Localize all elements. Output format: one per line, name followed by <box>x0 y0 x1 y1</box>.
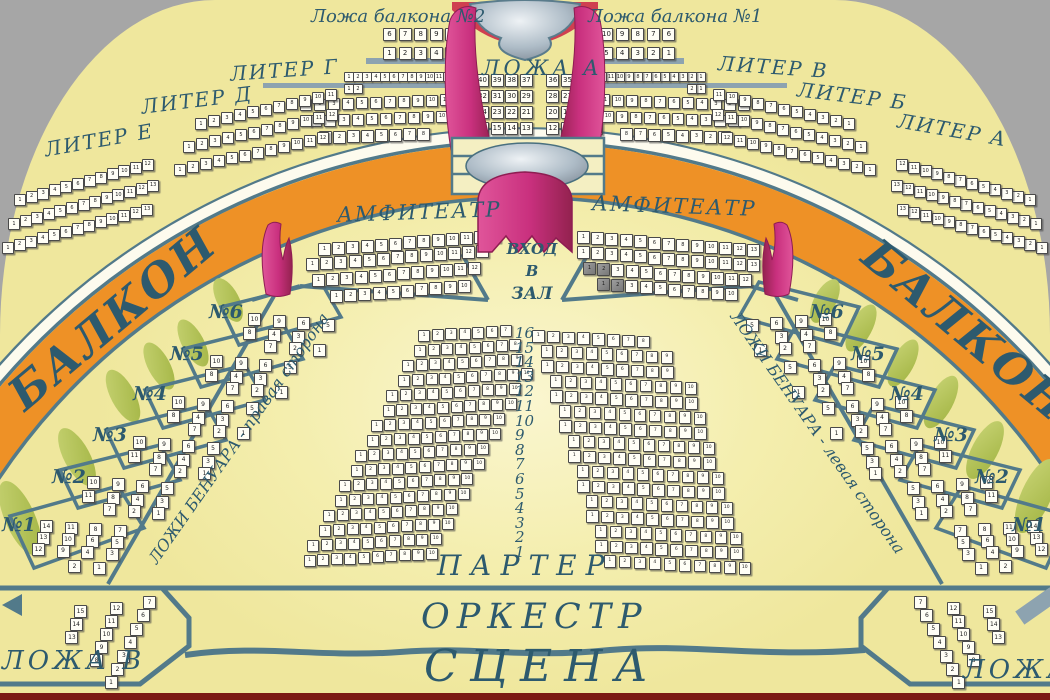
seat[interactable]: 3 <box>589 407 602 420</box>
seat[interactable]: 10 <box>430 533 442 545</box>
seat[interactable]: 3 <box>631 47 644 60</box>
seat[interactable]: 8 <box>696 286 709 299</box>
seat[interactable]: 9 <box>697 486 710 499</box>
seat[interactable]: 6 <box>372 551 384 563</box>
seat[interactable]: 8 <box>482 384 494 396</box>
seat[interactable]: 1 <box>590 138 603 151</box>
seat[interactable]: 5 <box>363 254 376 267</box>
seat[interactable]: 3 <box>346 241 359 254</box>
seat[interactable]: 8 <box>637 336 650 349</box>
seat[interactable]: 3 <box>1001 188 1013 200</box>
seat[interactable]: 7 <box>654 96 666 108</box>
seat[interactable]: 4 <box>622 467 635 480</box>
seat[interactable]: 2 <box>583 451 596 464</box>
seat[interactable]: 6 <box>643 439 656 452</box>
seat[interactable]: 1 <box>371 420 383 432</box>
seat[interactable]: 5 <box>130 623 143 636</box>
seat[interactable]: 1 <box>306 258 319 271</box>
seat[interactable]: 7 <box>622 335 635 348</box>
seat[interactable]: 2 <box>320 257 333 270</box>
seat[interactable]: 4 <box>546 138 559 151</box>
seat[interactable]: 6 <box>972 202 984 214</box>
seat[interactable]: 5 <box>409 447 421 459</box>
seat[interactable]: 10 <box>932 213 944 225</box>
seat[interactable]: 9 <box>428 519 440 531</box>
seat[interactable]: 7 <box>78 199 90 211</box>
seat[interactable]: 10 <box>118 165 130 177</box>
seat[interactable]: 2 <box>591 232 604 245</box>
seat[interactable]: 3 <box>445 328 457 340</box>
seat[interactable]: 4 <box>222 132 234 144</box>
seat[interactable]: 7 <box>389 535 401 547</box>
seat[interactable]: 9 <box>95 216 107 228</box>
seat[interactable]: 11 <box>725 273 738 286</box>
seat[interactable]: 3 <box>571 362 584 375</box>
seat[interactable]: 7 <box>399 28 412 41</box>
seat[interactable]: 6 <box>419 461 431 473</box>
seat[interactable]: 8 <box>417 235 430 248</box>
seat[interactable]: 6 <box>625 394 638 407</box>
seat[interactable]: 10 <box>210 355 223 368</box>
seat[interactable]: 3 <box>37 188 49 200</box>
seat[interactable]: 2 <box>597 263 610 276</box>
seat[interactable]: 11 <box>719 257 732 270</box>
seat[interactable]: 2 <box>333 131 346 144</box>
seat[interactable]: 2 <box>349 494 361 506</box>
seat[interactable]: 6 <box>505 138 518 151</box>
seat[interactable]: 7 <box>668 269 681 282</box>
seat[interactable]: 4 <box>604 407 617 420</box>
seat[interactable]: 2 <box>333 524 345 536</box>
seat[interactable]: 10 <box>711 272 724 285</box>
seat[interactable]: 10 <box>312 92 324 104</box>
seat[interactable]: 8 <box>640 96 652 108</box>
seat[interactable]: 7 <box>468 385 480 397</box>
seat[interactable]: 2 <box>1018 215 1030 227</box>
seat[interactable]: 7 <box>676 500 689 513</box>
seat[interactable]: 5 <box>619 408 632 421</box>
seat[interactable]: 2 <box>574 421 587 434</box>
seat[interactable]: 8 <box>773 144 785 156</box>
seat[interactable]: 6 <box>778 104 790 116</box>
seat[interactable]: 3 <box>338 114 350 126</box>
seat[interactable]: 6 <box>808 359 821 372</box>
seat[interactable]: 12 <box>462 246 475 259</box>
seat[interactable]: 1 <box>541 345 554 358</box>
seat[interactable]: 1 <box>398 375 410 387</box>
seat[interactable]: 11 <box>454 263 467 276</box>
seat[interactable]: 8 <box>274 121 286 133</box>
seat[interactable]: 12 <box>474 231 487 244</box>
seat[interactable]: 6 <box>482 341 494 353</box>
seat[interactable]: 2 <box>337 509 349 521</box>
seat[interactable]: 3 <box>394 433 406 445</box>
seat[interactable]: 5 <box>619 423 632 436</box>
seat[interactable]: 4 <box>352 114 364 126</box>
seat[interactable]: 1 <box>152 507 165 520</box>
seat[interactable]: 3 <box>625 527 638 540</box>
seat[interactable]: 1 <box>915 507 928 520</box>
seat[interactable]: 10 <box>730 547 743 560</box>
seat[interactable]: 7 <box>634 128 647 141</box>
seat[interactable]: 10 <box>489 428 501 440</box>
seat[interactable]: 5 <box>369 270 382 283</box>
seat[interactable]: 4 <box>411 418 423 430</box>
seat[interactable]: 8 <box>411 266 424 279</box>
seat[interactable]: 12 <box>32 543 45 556</box>
seat[interactable]: 9 <box>464 444 476 456</box>
seat[interactable]: 7 <box>786 147 798 159</box>
seat[interactable]: 3 <box>358 288 371 301</box>
seat[interactable]: 3 <box>398 418 410 430</box>
seat[interactable]: 1 <box>583 262 596 275</box>
seat[interactable]: 1 <box>1030 218 1042 230</box>
seat[interactable]: 8 <box>466 414 478 426</box>
seat[interactable]: 3 <box>429 358 441 370</box>
seat[interactable]: 6 <box>652 484 665 497</box>
seat[interactable]: 5 <box>592 333 605 346</box>
seat[interactable]: 9 <box>448 474 460 486</box>
seat[interactable]: 5 <box>861 442 874 455</box>
seat[interactable]: 3 <box>340 272 353 285</box>
seat[interactable]: 3 <box>334 256 347 269</box>
seat[interactable]: 8 <box>631 28 644 41</box>
seat[interactable]: 9 <box>432 504 444 516</box>
seat[interactable]: 9 <box>956 478 969 491</box>
seat[interactable]: 8 <box>405 250 418 263</box>
seat[interactable]: 4 <box>626 265 639 278</box>
seat[interactable]: 10 <box>436 111 448 123</box>
seat[interactable]: 7 <box>391 251 404 264</box>
seat[interactable]: 4 <box>933 636 946 649</box>
seat[interactable]: 23 <box>491 106 504 119</box>
seat[interactable]: 5 <box>226 152 238 164</box>
seat[interactable]: 12 <box>136 183 148 195</box>
seat[interactable]: 2 <box>174 465 187 478</box>
seat[interactable]: 2 <box>574 406 587 419</box>
seat[interactable]: 10 <box>612 95 624 107</box>
seat[interactable]: 10 <box>446 233 459 246</box>
seat[interactable]: 6 <box>670 529 683 542</box>
seat[interactable]: 2 <box>416 359 428 371</box>
seat[interactable]: 7 <box>631 350 644 363</box>
seat[interactable]: 4 <box>995 208 1007 220</box>
seat[interactable]: 10 <box>461 473 473 485</box>
seat[interactable]: 11 <box>598 94 610 106</box>
seat[interactable]: 8 <box>655 396 668 409</box>
seat[interactable]: 3 <box>607 467 620 480</box>
seat[interactable]: 5 <box>654 282 667 295</box>
seat[interactable]: 6 <box>616 349 629 362</box>
seat[interactable]: 8 <box>286 98 298 110</box>
seat[interactable]: 7 <box>415 283 428 296</box>
seat[interactable]: 4 <box>586 347 599 360</box>
seat[interactable]: 6 <box>668 97 680 109</box>
seat[interactable]: 2 <box>384 419 396 431</box>
seat[interactable]: 10 <box>106 213 118 225</box>
seat[interactable]: 11 <box>124 186 136 198</box>
seat[interactable]: 7 <box>385 550 397 562</box>
seat[interactable]: 4 <box>1001 232 1013 244</box>
seat[interactable]: 6 <box>670 544 683 557</box>
seat[interactable]: 1 <box>339 480 351 492</box>
seat[interactable]: 19 <box>561 106 574 119</box>
seat[interactable]: 5 <box>646 513 659 526</box>
seat[interactable]: 6 <box>380 113 392 125</box>
seat[interactable]: 9 <box>670 381 683 394</box>
seat[interactable]: 26 <box>576 90 589 103</box>
seat[interactable]: 11 <box>920 210 932 222</box>
seat[interactable]: 3 <box>838 158 850 170</box>
seat[interactable]: 2 <box>26 191 38 203</box>
seat[interactable]: 3 <box>616 512 629 525</box>
seat[interactable]: 6 <box>885 440 898 453</box>
seat[interactable]: 2 <box>610 526 623 539</box>
seat[interactable]: 16 <box>476 122 489 135</box>
seat[interactable]: 10 <box>248 313 261 326</box>
seat[interactable]: 4 <box>376 493 388 505</box>
seat[interactable]: 7 <box>879 423 892 436</box>
seat[interactable]: 7 <box>436 445 448 457</box>
seat[interactable]: 11 <box>939 450 952 463</box>
seat[interactable]: 4 <box>586 362 599 375</box>
seat[interactable]: 6 <box>389 238 402 251</box>
seat[interactable]: 6 <box>658 113 670 125</box>
seat[interactable]: 10 <box>445 28 458 41</box>
seat[interactable]: 1 <box>355 450 367 462</box>
seat[interactable]: 8 <box>418 504 430 516</box>
seat[interactable]: 7 <box>685 545 698 558</box>
seat[interactable]: 9 <box>197 398 210 411</box>
seat[interactable]: 8 <box>655 381 668 394</box>
seat[interactable]: 12 <box>468 262 481 275</box>
seat[interactable]: 3 <box>378 463 390 475</box>
seat[interactable]: 9 <box>491 399 503 411</box>
seat[interactable]: 10 <box>100 628 113 641</box>
seat[interactable]: 1 <box>174 164 186 176</box>
seat[interactable]: 3 <box>700 114 712 126</box>
seat[interactable]: 9 <box>495 384 507 396</box>
seat[interactable]: 6 <box>370 97 382 109</box>
seat[interactable]: 3 <box>347 523 359 535</box>
seat[interactable]: 6 <box>72 178 84 190</box>
seat[interactable]: 6 <box>770 317 783 330</box>
seat[interactable]: 9 <box>273 315 286 328</box>
seat[interactable]: 1 <box>307 540 319 552</box>
seat[interactable]: 8 <box>955 220 967 232</box>
seat[interactable]: 5 <box>390 492 402 504</box>
seat[interactable]: 12 <box>733 258 746 271</box>
seat[interactable]: 12 <box>733 243 746 256</box>
seat[interactable]: 2 <box>187 161 199 173</box>
seat[interactable]: 11 <box>128 450 141 463</box>
seat[interactable]: 8 <box>434 474 446 486</box>
seat[interactable]: 2 <box>128 505 141 518</box>
seat[interactable]: 10 <box>300 115 312 127</box>
seat[interactable]: 9 <box>287 118 299 130</box>
seat[interactable]: 8 <box>478 399 490 411</box>
seat[interactable]: 9 <box>412 95 424 107</box>
seat[interactable]: 3 <box>410 403 422 415</box>
seat[interactable]: 4 <box>604 422 617 435</box>
seat[interactable]: 8 <box>949 196 961 208</box>
seat[interactable]: 10 <box>703 457 716 470</box>
seat[interactable]: 5 <box>405 462 417 474</box>
seat[interactable]: 14 <box>70 618 83 631</box>
seat[interactable]: 9 <box>795 315 808 328</box>
seat[interactable]: 8 <box>403 534 415 546</box>
seat[interactable]: 9 <box>739 95 751 107</box>
seat[interactable]: 1 <box>383 405 395 417</box>
seat[interactable]: 3 <box>616 497 629 510</box>
seat[interactable]: 10 <box>576 122 589 135</box>
seat[interactable]: 10 <box>493 413 505 425</box>
seat[interactable]: 8 <box>943 172 955 184</box>
seat[interactable]: 4 <box>344 553 356 565</box>
seat[interactable]: 12 <box>110 602 123 615</box>
seat[interactable]: 13 <box>992 631 1005 644</box>
seat[interactable]: 8 <box>430 489 442 501</box>
seat[interactable]: 5 <box>610 393 623 406</box>
seat[interactable]: 8 <box>243 327 256 340</box>
seat[interactable]: 3 <box>678 72 688 82</box>
seat[interactable]: 8 <box>83 220 95 232</box>
seat[interactable]: 29 <box>520 90 533 103</box>
seat[interactable]: 8 <box>417 128 430 141</box>
seat[interactable]: 5 <box>161 482 174 495</box>
seat[interactable]: 12 <box>739 274 752 287</box>
seat[interactable]: 2 <box>344 289 357 302</box>
seat[interactable]: 7 <box>500 325 512 337</box>
seat[interactable]: 10 <box>458 280 471 293</box>
seat[interactable]: 4 <box>622 482 635 495</box>
seat[interactable]: 9 <box>661 366 674 379</box>
seat[interactable]: 6 <box>470 356 482 368</box>
seat[interactable]: 8 <box>398 96 410 108</box>
seat[interactable]: 7 <box>452 415 464 427</box>
seat[interactable]: 11 <box>606 72 616 82</box>
seat[interactable]: 5 <box>378 507 390 519</box>
seat[interactable]: 6 <box>466 371 478 383</box>
seat[interactable]: 1 <box>597 278 610 291</box>
seat[interactable]: 7 <box>841 382 854 395</box>
seat[interactable]: 3 <box>347 130 360 143</box>
seat[interactable]: 4 <box>989 184 1001 196</box>
seat[interactable]: 10 <box>726 92 738 104</box>
seat[interactable]: 4 <box>349 255 362 268</box>
seat[interactable]: 4 <box>234 109 246 121</box>
seat[interactable]: 3 <box>817 112 829 124</box>
seat[interactable]: 4 <box>423 403 435 415</box>
seat[interactable]: 5 <box>637 468 650 481</box>
seat[interactable]: 4 <box>640 527 653 540</box>
seat[interactable]: 2 <box>196 138 208 150</box>
seat[interactable]: 10 <box>477 443 489 455</box>
seat[interactable]: 4 <box>49 184 61 196</box>
seat[interactable]: 4 <box>459 328 471 340</box>
seat[interactable]: 11 <box>448 247 461 260</box>
seat[interactable]: 4 <box>37 232 49 244</box>
seat[interactable]: 8 <box>682 471 695 484</box>
seat[interactable]: 7 <box>84 175 96 187</box>
seat[interactable]: 4 <box>213 155 225 167</box>
seat[interactable]: 7 <box>631 365 644 378</box>
seat[interactable]: 6 <box>846 400 859 413</box>
seat[interactable]: 6 <box>966 178 978 190</box>
seat[interactable]: 9 <box>724 561 737 574</box>
seat[interactable]: 6 <box>259 359 272 372</box>
seat[interactable]: 8 <box>205 369 218 382</box>
seat[interactable]: 9 <box>107 168 119 180</box>
seat[interactable]: 8 <box>824 327 837 340</box>
seat[interactable]: 6 <box>66 202 78 214</box>
seat[interactable]: 1 <box>1036 242 1048 254</box>
seat[interactable]: 9 <box>760 141 772 153</box>
seat[interactable]: 6 <box>607 334 620 347</box>
seat[interactable]: 13 <box>476 245 489 258</box>
seat[interactable]: 9 <box>962 641 975 654</box>
seat[interactable]: 2 <box>326 273 339 286</box>
seat[interactable]: 5 <box>387 286 400 299</box>
seat[interactable]: 2 <box>428 344 440 356</box>
seat[interactable]: 3 <box>829 135 841 147</box>
seat[interactable]: 8 <box>676 254 689 267</box>
seat[interactable]: 2 <box>547 331 560 344</box>
seat[interactable]: 13 <box>747 259 760 272</box>
seat[interactable]: 3 <box>331 553 343 565</box>
seat[interactable]: 4 <box>361 130 374 143</box>
seat[interactable]: 7 <box>417 490 429 502</box>
seat[interactable]: 1 <box>577 465 590 478</box>
seat[interactable]: 3 <box>25 236 37 248</box>
seat[interactable]: 6 <box>654 268 667 281</box>
seat[interactable]: 5 <box>822 402 835 415</box>
seat[interactable]: 7 <box>403 236 416 249</box>
seat[interactable]: 7 <box>273 101 285 113</box>
seat[interactable]: 5 <box>628 438 641 451</box>
seat[interactable]: 6 <box>486 326 498 338</box>
seat[interactable]: 8 <box>700 531 713 544</box>
seat[interactable]: 11 <box>440 94 452 106</box>
seat[interactable]: 5 <box>646 498 659 511</box>
seat[interactable]: 9 <box>444 281 457 294</box>
seat[interactable]: 7 <box>448 430 460 442</box>
seat[interactable]: 6 <box>634 424 647 437</box>
seat[interactable]: 4 <box>613 452 626 465</box>
seat[interactable]: 10 <box>440 264 453 277</box>
seat[interactable]: 3 <box>414 47 427 60</box>
seat[interactable]: 2 <box>619 556 632 569</box>
seat[interactable]: 8 <box>476 138 489 151</box>
seat[interactable]: 6 <box>387 521 399 533</box>
seat[interactable]: 1 <box>195 118 207 130</box>
seat[interactable]: 1 <box>2 242 14 254</box>
seat[interactable]: 2 <box>20 215 32 227</box>
seat[interactable]: 6 <box>662 28 675 41</box>
seat[interactable]: 8 <box>673 441 686 454</box>
seat[interactable]: 6 <box>136 480 149 493</box>
seat[interactable]: 7 <box>480 370 492 382</box>
seat[interactable]: 4 <box>631 512 644 525</box>
seat[interactable]: 3 <box>414 388 426 400</box>
seat[interactable]: 5 <box>601 363 614 376</box>
seat[interactable]: 12 <box>546 122 559 135</box>
seat[interactable]: 4 <box>396 448 408 460</box>
seat[interactable]: 7 <box>264 340 277 353</box>
seat[interactable]: 2 <box>817 384 830 397</box>
seat[interactable]: 11 <box>734 135 746 147</box>
seat[interactable]: 15 <box>491 122 504 135</box>
